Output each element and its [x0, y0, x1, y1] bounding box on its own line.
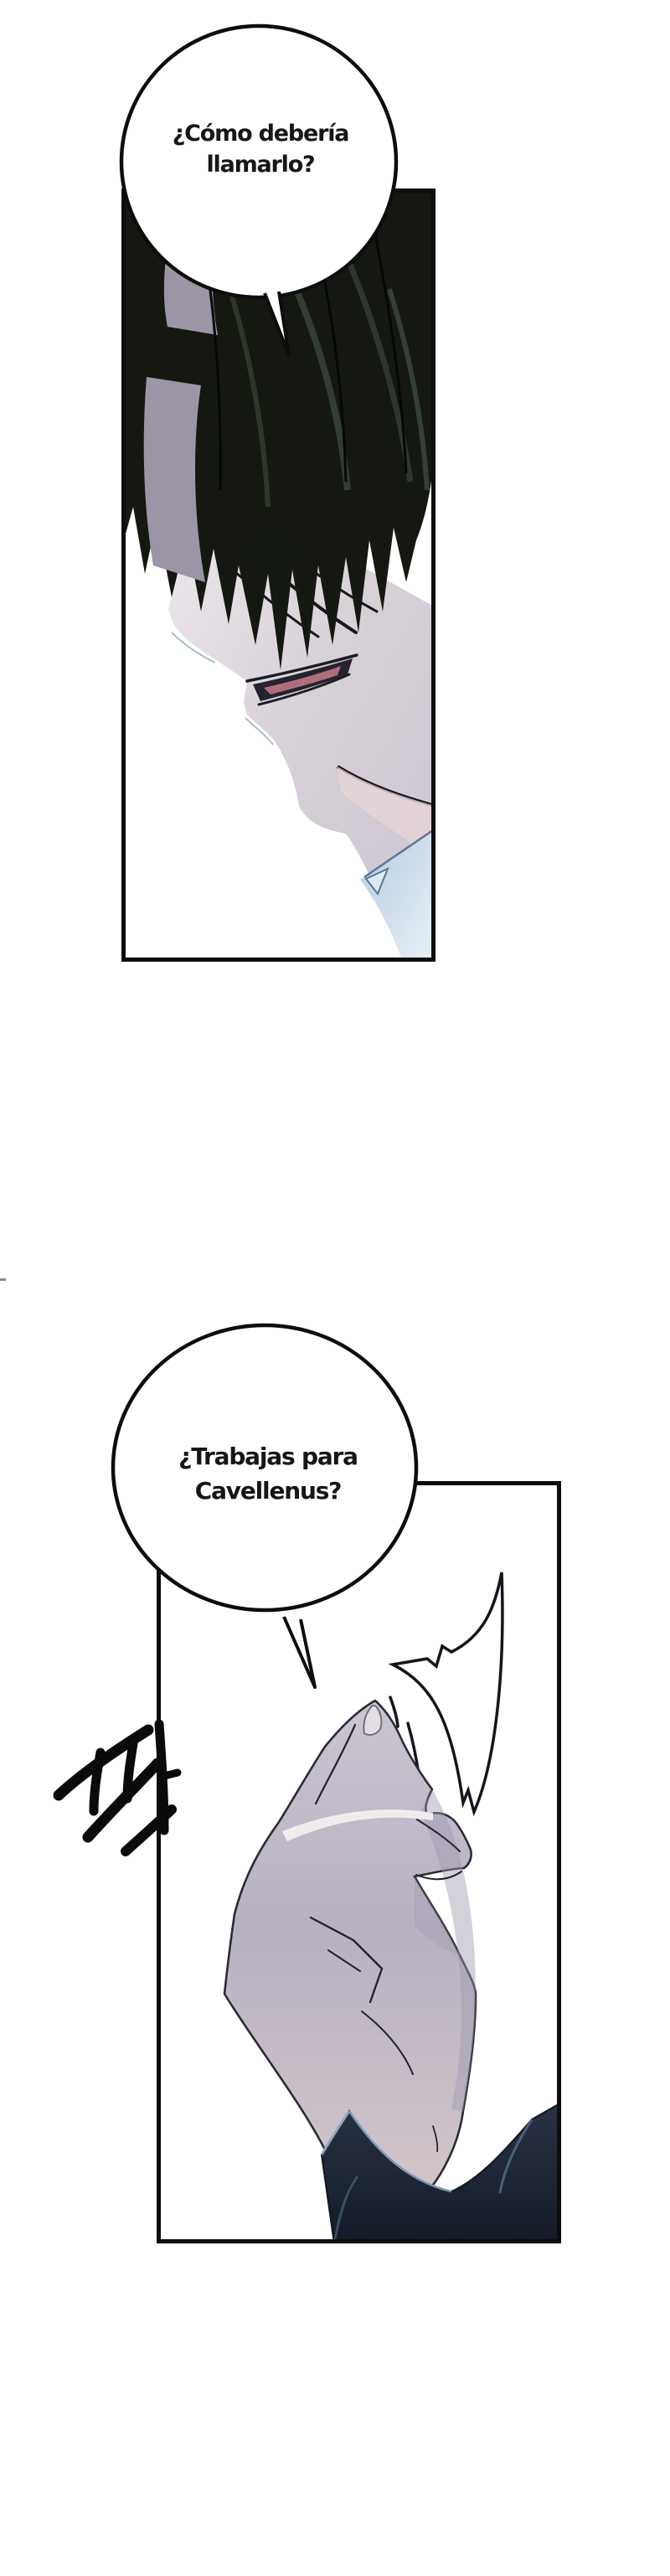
bubble-1-text: ¿Cómo debería llamarlo?: [118, 118, 403, 180]
bubble-2-text: ¿Trabajas para Cavellenus?: [109, 1439, 427, 1508]
bubble-2-line-2: Cavellenus?: [109, 1474, 427, 1508]
sfx-snap-strokes: [33, 1709, 184, 1868]
speech-bubble-1: ¿Cómo debería llamarlo?: [118, 23, 403, 358]
sfx-snap: 딱: [33, 1709, 184, 1868]
bubble-2-line-1: ¿Trabajas para: [109, 1439, 427, 1474]
bubble-1-line-1: ¿Cómo debería: [118, 118, 403, 149]
speech-bubble-2: ¿Trabajas para Cavellenus?: [109, 1322, 427, 1691]
bubble-1-line-2: llamarlo?: [118, 149, 403, 180]
comic-page: ¿Cómo debería llamarlo? ¿Trabajas para C…: [0, 0, 670, 2576]
margin-mark: [0, 1278, 6, 1281]
bubble-1-shape: [118, 23, 403, 358]
